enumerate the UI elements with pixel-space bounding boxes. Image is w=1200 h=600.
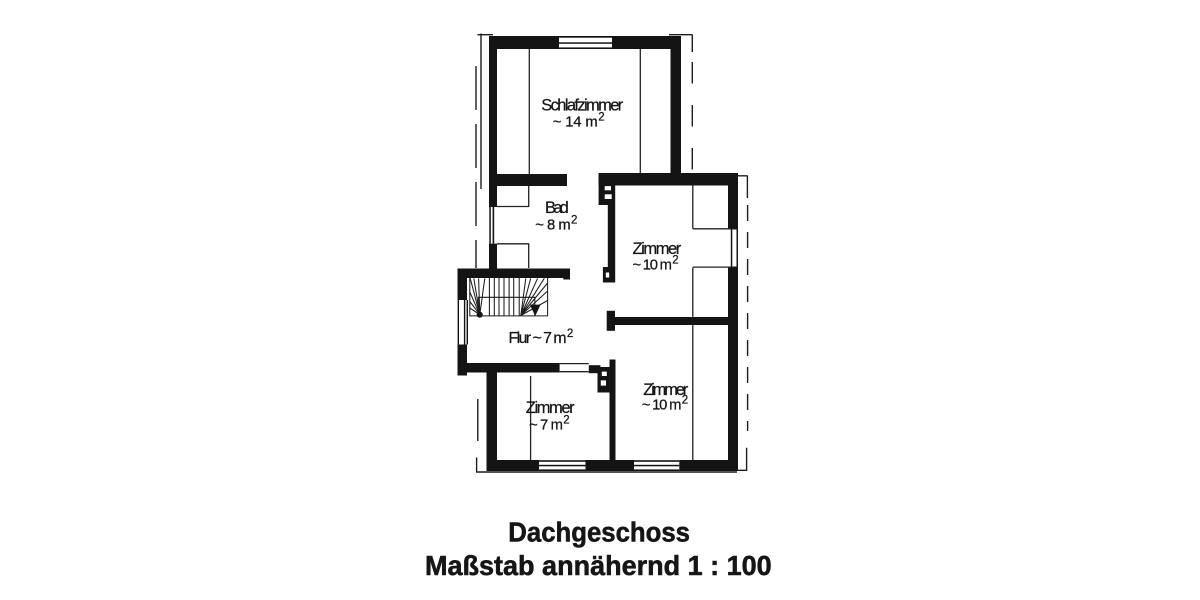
svg-text:2: 2 (672, 255, 678, 267)
svg-text:~ 10 m: ~ 10 m (633, 258, 673, 274)
svg-text:~ 14 m: ~ 14 m (553, 114, 598, 130)
svg-text:Bad: Bad (545, 199, 569, 217)
svg-text:2: 2 (571, 214, 577, 226)
svg-text:~ 7 m: ~ 7 m (529, 418, 563, 434)
svg-text:~ 10 m: ~ 10 m (642, 398, 682, 414)
svg-text:2: 2 (598, 111, 604, 123)
svg-text:Flur ~ 7 m: Flur ~ 7 m (509, 330, 567, 347)
svg-text:2: 2 (563, 415, 569, 427)
svg-text:Dachgeschoss: Dachgeschoss (508, 517, 690, 548)
svg-text:~ 8 m: ~ 8 m (535, 217, 571, 233)
svg-text:Maßstab annähernd 1 : 100: Maßstab annähernd 1 : 100 (425, 550, 772, 581)
svg-text:2: 2 (682, 395, 688, 407)
svg-text:Schlafzimmer: Schlafzimmer (541, 96, 624, 114)
svg-text:2: 2 (567, 328, 573, 340)
